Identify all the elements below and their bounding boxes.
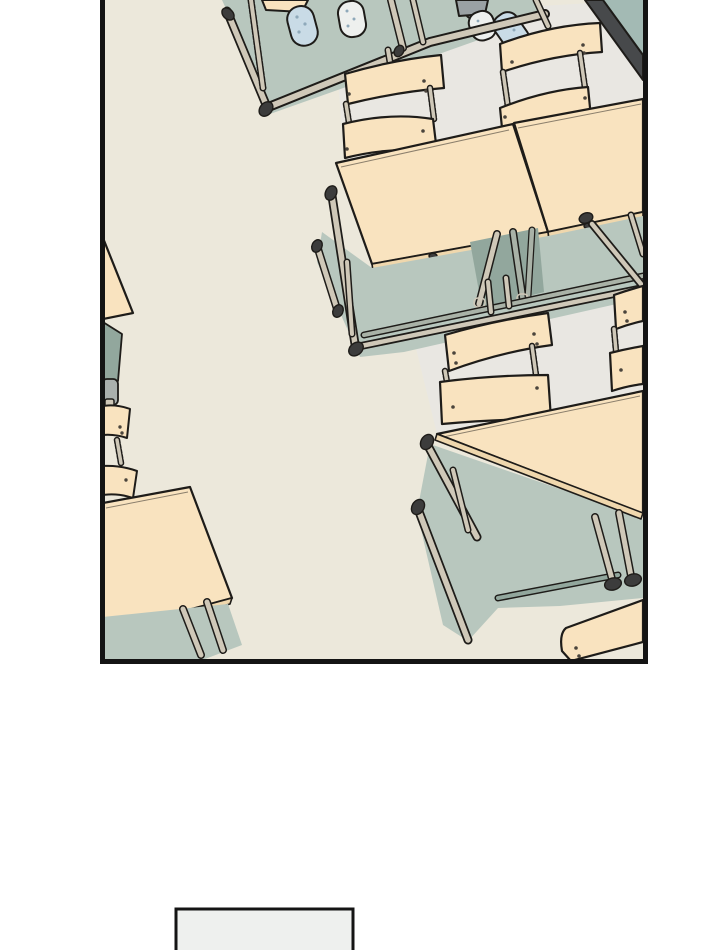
rivet-dot	[118, 425, 121, 428]
rivet-dot	[535, 386, 539, 390]
slipper-dot	[297, 30, 300, 33]
rivet-dot	[581, 43, 585, 47]
rivet-dot	[451, 405, 455, 409]
rivet-dot	[454, 361, 458, 365]
rivet-dot	[120, 431, 123, 434]
chair-backrest-slat	[614, 286, 643, 329]
rivet-dot	[574, 646, 578, 650]
chair-backrest-slat	[610, 346, 643, 391]
leg-shadow	[103, 322, 122, 386]
rivet-dot	[347, 92, 351, 96]
slipper-dot	[295, 15, 298, 18]
slipper-dot	[347, 25, 350, 28]
next-panel-frame	[176, 909, 353, 950]
chair-backrest-slat	[103, 405, 130, 438]
panel-border-left	[100, 0, 105, 664]
slipper-dot	[346, 10, 349, 13]
rivet-dot	[623, 310, 627, 314]
rivet-dot	[532, 332, 536, 336]
rivet-dot	[503, 115, 507, 119]
rivet-dot	[124, 478, 127, 481]
main-panel-scene	[102, 0, 643, 661]
slipper-dot	[513, 29, 516, 32]
rivet-dot	[619, 368, 623, 372]
slipper-dot	[303, 22, 306, 25]
slipper-dot	[477, 20, 480, 23]
rivet-dot	[583, 96, 587, 100]
rivet-dot	[577, 654, 581, 658]
panel-border-bottom	[100, 659, 648, 664]
slipper-dot	[353, 18, 356, 21]
chair-backrest-slat	[103, 466, 137, 498]
webtoon-page	[0, 0, 720, 950]
comic-artwork	[0, 0, 720, 950]
rivet-dot	[422, 79, 426, 83]
rivet-dot	[535, 342, 539, 346]
rivet-dot	[345, 147, 349, 151]
rivet-dot	[421, 129, 425, 133]
panel-border-right	[643, 0, 648, 664]
rivet-dot	[452, 351, 456, 355]
rivet-dot	[510, 60, 514, 64]
rivet-dot	[625, 319, 629, 323]
